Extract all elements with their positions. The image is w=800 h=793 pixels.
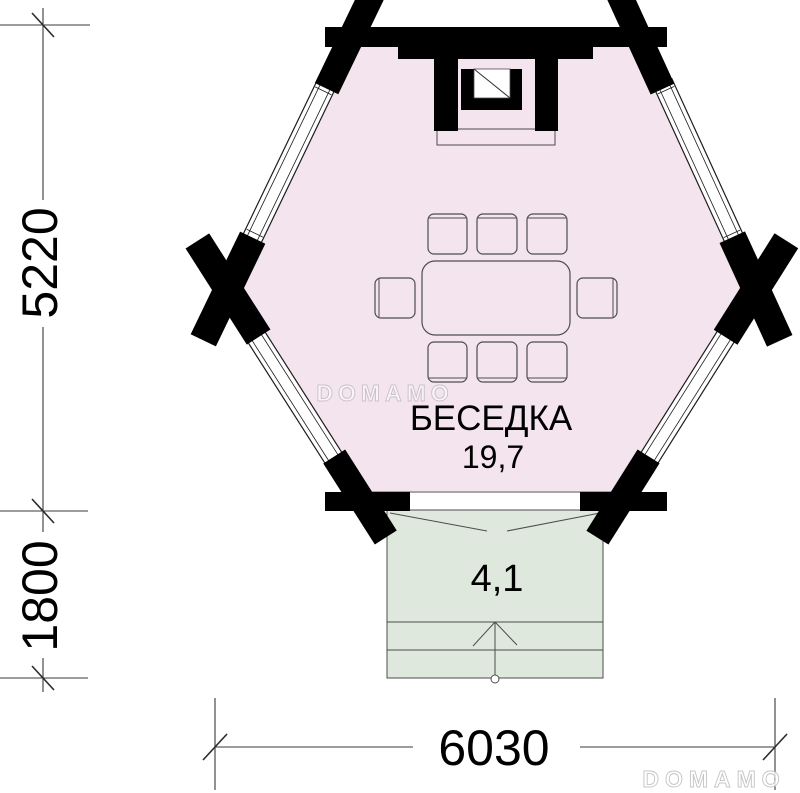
fireplace-pier-right <box>535 59 558 131</box>
watermark-corner: DOMAMO <box>642 766 785 792</box>
porch-area-label: 4,1 <box>471 558 524 600</box>
chair-bottom-3 <box>527 342 567 382</box>
left-dimension: 5220 1800 <box>0 8 90 692</box>
arrow-origin-circle <box>491 675 499 683</box>
top-wall-log-inner <box>398 47 593 59</box>
doorway-opening <box>412 491 579 510</box>
fireplace-pier-left <box>434 59 458 131</box>
chair-top-3 <box>527 214 567 254</box>
chair-bottom-2 <box>477 342 517 382</box>
dimension-label-6030: 6030 <box>438 720 549 776</box>
chair-left <box>375 278 415 318</box>
chair-bottom-1 <box>428 342 467 382</box>
dimension-label-1800: 1800 <box>12 540 68 651</box>
floor-plan-page: 5220 1800 6030 <box>0 0 800 793</box>
floor-plan-drawing: 5220 1800 6030 <box>0 0 800 793</box>
dimension-label-5220: 5220 <box>12 207 68 318</box>
room-name-label: БЕСЕДКА <box>410 399 573 438</box>
room-area-label: 19,7 <box>462 439 524 475</box>
chair-top-2 <box>477 214 517 254</box>
chair-top-1 <box>428 214 467 254</box>
chair-right <box>577 278 617 318</box>
top-wall-log <box>325 27 667 47</box>
dining-table <box>422 261 570 335</box>
